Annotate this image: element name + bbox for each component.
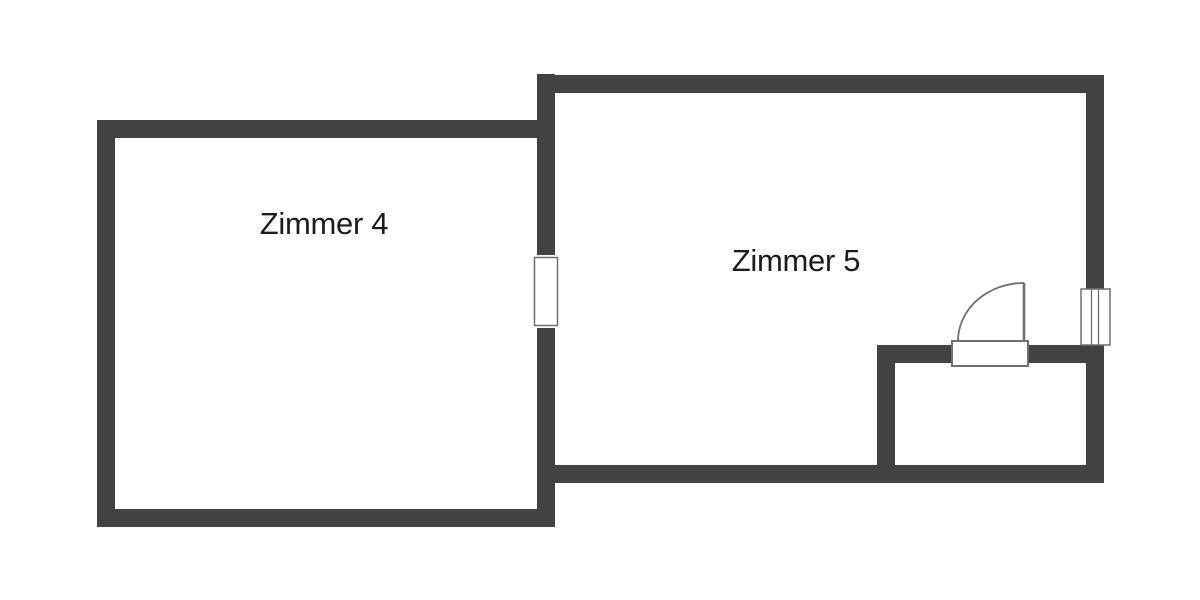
shared-wall-upper-segment	[537, 74, 555, 255]
zimmer5-right-wall-upper	[1086, 75, 1104, 289]
floorplan-svg: Zimmer 4 Zimmer 5	[0, 0, 1200, 600]
zimmer5-bottom-wall	[537, 465, 1104, 483]
zimmer4-top-wall	[97, 120, 555, 138]
zimmer4-left-wall	[97, 120, 115, 527]
wall-opening-threshold	[535, 258, 558, 326]
door-threshold	[952, 341, 1028, 366]
walls	[97, 74, 1104, 527]
window-symbol	[1081, 289, 1110, 345]
niche-top-wall-right-segment	[1028, 345, 1104, 363]
wall-opening-symbol	[535, 258, 558, 326]
zimmer4-bottom-wall	[97, 509, 555, 527]
room-label-zimmer-5: Zimmer 5	[732, 243, 861, 278]
niche-left-wall	[877, 345, 895, 483]
door-symbol	[952, 283, 1028, 366]
room-label-zimmer-4: Zimmer 4	[260, 206, 389, 241]
zimmer5-top-wall	[537, 75, 1104, 93]
floorplan-canvas: Zimmer 4 Zimmer 5	[0, 0, 1200, 600]
zimmer5-right-wall-lower	[1086, 345, 1104, 483]
door-swing-arc	[958, 283, 1024, 341]
window-frame	[1081, 289, 1110, 345]
shared-wall-lower-segment	[537, 328, 555, 527]
